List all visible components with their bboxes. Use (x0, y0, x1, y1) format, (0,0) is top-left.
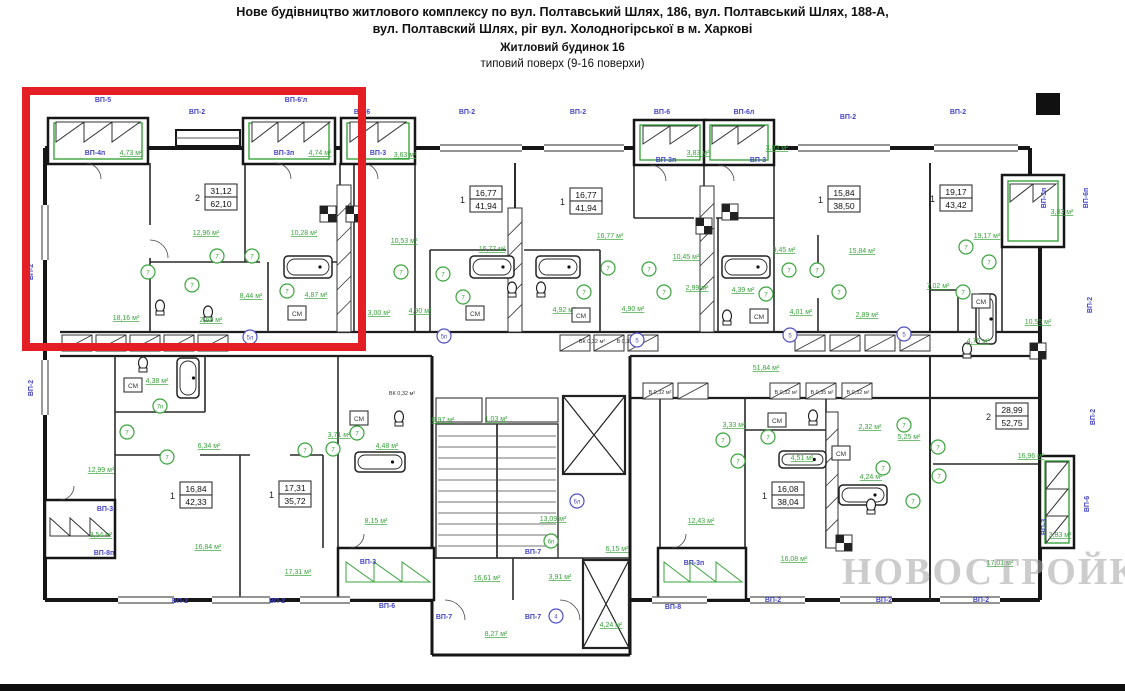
vp-label: ВП-2 (570, 109, 586, 116)
room-area-label: 4,38 м² (146, 378, 169, 385)
apartment-label: 116,7741,94 (460, 186, 502, 212)
duct-label: В 0,32 м² (648, 390, 671, 396)
vp-label: ВП-6л (734, 109, 755, 116)
room-area-label: 5,25 м² (898, 434, 921, 441)
vp-label: ВП-2 (269, 598, 285, 605)
room-area-label: 18,16 м² (113, 315, 140, 322)
room-area-label: 4,39 м² (732, 287, 755, 294)
svg-text:52,75: 52,75 (1001, 418, 1023, 428)
room-area-label: 2,89 м² (856, 312, 879, 319)
vp-label: ВП-6'л (285, 97, 307, 104)
room-area-label: 4,87 м² (305, 292, 328, 299)
room-area-label: 16,77 м² (597, 233, 624, 240)
svg-text:1: 1 (170, 491, 175, 501)
svg-text:1: 1 (269, 490, 274, 500)
vp-label: ВП-2 (1087, 297, 1094, 313)
room-area-label: 16,84 м² (195, 544, 222, 551)
svg-text:15,84: 15,84 (833, 188, 855, 198)
vp-label: ВП-7 (436, 614, 452, 621)
vp-label: ВП-3п (684, 560, 705, 567)
duct-label: ВК 0,32 м² (389, 391, 415, 397)
axis-marker-label: 6л (574, 499, 581, 505)
room-area-label: 8,44 м² (240, 293, 263, 300)
svg-text:31,12: 31,12 (210, 186, 232, 196)
room-area-label: 4,24 м² (860, 474, 883, 481)
room-area-label: 10,53 м² (391, 238, 418, 245)
svg-text:1: 1 (818, 195, 823, 205)
room-area-label: 7,02 м² (927, 283, 950, 290)
svg-text:1: 1 (460, 195, 465, 205)
axis-marker-label: 7п (157, 404, 164, 410)
vp-label: ВП-3 (1041, 519, 1048, 535)
duct-label: В 0,32 м² (774, 390, 797, 396)
room-area-label: 4,90 м² (622, 306, 645, 313)
floor-plan-page: Нове будівництво житлового комплексу по … (0, 0, 1125, 691)
svg-text:19,17: 19,17 (945, 187, 967, 197)
watermark: НОВОСТРОЙКИ (842, 550, 1122, 594)
room-area-label: 9,45 м² (773, 247, 796, 254)
room-area-label: 13,09 м² (540, 516, 567, 523)
vp-label: ВП-3 (360, 559, 376, 566)
bottom-black-bar (0, 684, 1125, 691)
svg-text:42,33: 42,33 (185, 497, 207, 507)
svg-text:38,04: 38,04 (777, 497, 799, 507)
axis-marker-label: 5п (441, 334, 448, 340)
room-area-label: 6,34 м² (198, 443, 221, 450)
vp-label: ВП-2 (840, 114, 856, 121)
room-area-label: 16,77 м² (479, 246, 506, 253)
room-area-label: 16,61 м² (474, 575, 501, 582)
room-area-label: 4,90 м² (409, 308, 432, 315)
washing-machine-label: СМ (976, 299, 986, 306)
room-area-label: 3,83 м² (687, 150, 710, 157)
vp-label: ВП-2 (950, 109, 966, 116)
vp-label: ВП-2 (1090, 409, 1097, 425)
vp-label: ВП-6 (1084, 496, 1091, 512)
axis-marker-label: 6п (548, 539, 555, 545)
elevator-shafts (563, 396, 629, 648)
washing-machine-label: СМ (128, 383, 138, 390)
vp-label: ВП-3п (656, 157, 677, 164)
vp-label: ВП-6 (379, 603, 395, 610)
apartment-label: 117,3135,72 (269, 481, 311, 507)
vp-label: ВП-2 (973, 597, 989, 604)
apartment-label: 228,9952,75 (986, 403, 1028, 429)
vp-label: ВП-2 (28, 380, 35, 396)
room-area-label: 3,91 м² (549, 574, 572, 581)
apartment-label: 116,7741,94 (560, 188, 602, 214)
room-area-label: 2,32 м² (859, 424, 882, 431)
svg-text:2: 2 (986, 412, 991, 422)
vp-label: ВП-7 (525, 614, 541, 621)
vp-label: ВП-2 (459, 109, 475, 116)
svg-text:38,50: 38,50 (833, 201, 855, 211)
room-area-label: 4,48 м² (376, 443, 399, 450)
vp-label: ВП-6 (654, 109, 670, 116)
vp-label: ВП-6п (1083, 188, 1090, 209)
room-area-label: 16,96 м² (1018, 453, 1045, 460)
partition-walls (115, 163, 1040, 600)
room-area-label: 3,00 м² (368, 310, 391, 317)
room-area-label: 3,71 м² (328, 432, 351, 439)
axis-marker-label: 5л (247, 335, 254, 341)
room-area-label: 10,55 м² (1025, 319, 1052, 326)
room-area-label: 0,97 м² (432, 417, 455, 424)
vp-label: ВП-3 (370, 150, 386, 157)
vp-label: ВП-8 (665, 604, 681, 611)
svg-text:43,42: 43,42 (945, 200, 967, 210)
room-area-label: 4,73 м² (120, 150, 143, 157)
room-area-label: 10,45 м² (673, 254, 700, 261)
room-area-label: 2,99 м² (686, 285, 709, 292)
vp-label: ВП-3 (97, 506, 113, 513)
vp-label: ВП-2 (189, 109, 205, 116)
vp-label: ВП-5 (95, 97, 111, 104)
svg-text:16,84: 16,84 (185, 484, 207, 494)
washing-machine-label: СМ (754, 314, 764, 321)
room-area-label: 16,08 м² (781, 556, 808, 563)
room-area-label: 4,76 м² (967, 338, 990, 345)
apartment-label: 231,1262,10 (195, 184, 237, 210)
vp-label: ВП-2 (172, 598, 188, 605)
washing-machine-label: СМ (354, 416, 364, 423)
svg-text:28,99: 28,99 (1001, 405, 1023, 415)
duct-label: В 0,32 м² (846, 390, 869, 396)
room-area-label: 4,51 м² (791, 455, 814, 462)
svg-text:16,77: 16,77 (475, 188, 497, 198)
room-area-label: 2,65 м² (200, 317, 223, 324)
svg-text:41,94: 41,94 (575, 203, 597, 213)
room-area-label: 12,43 м² (688, 518, 715, 525)
svg-text:16,08: 16,08 (777, 484, 799, 494)
apartment-label: 116,8442,33 (170, 482, 212, 508)
svg-text:2: 2 (195, 193, 200, 203)
apartment-label: 116,0838,04 (762, 482, 804, 508)
room-area-label: 8,15 м² (365, 518, 388, 525)
svg-text:17,31: 17,31 (284, 483, 306, 493)
washing-machine-label: СМ (470, 311, 480, 318)
room-area-label: 12,96 м² (193, 230, 220, 237)
vp-label: ВП-7 (525, 549, 541, 556)
room-area-label: 19,17 м² (974, 233, 1001, 240)
room-area-label: 3,83 м² (766, 145, 789, 152)
stair-core-walls (432, 356, 630, 655)
vp-label: ВП-3п (274, 150, 295, 157)
washing-machine-label: СМ (836, 451, 846, 458)
washing-machine-label: СМ (772, 418, 782, 425)
svg-text:16,77: 16,77 (575, 190, 597, 200)
room-area-label: 3,54 м² (90, 532, 113, 539)
room-area-label: 12,99 м² (88, 467, 115, 474)
apartment-label: 115,8438,50 (818, 186, 860, 212)
vp-label: ВП-3 (750, 157, 766, 164)
room-area-label: 17,31 м² (285, 569, 312, 576)
room-area-label: 3,63 м² (394, 152, 417, 159)
duct-label: ВК 0,32 м² (579, 339, 605, 345)
svg-text:1: 1 (560, 197, 565, 207)
washing-machine-label: СМ (292, 311, 302, 318)
vp-label: ВП-2 (876, 597, 892, 604)
room-area-label: 8,27 м² (485, 631, 508, 638)
duct-label: В 0,35 м² (810, 390, 833, 396)
vp-label: ВП-4п (85, 150, 106, 157)
vp-label: ВП-2 (765, 597, 781, 604)
washing-machine-label: СМ (576, 313, 586, 320)
svg-text:1: 1 (762, 491, 767, 501)
room-area-label: 3,33 м² (723, 422, 746, 429)
svg-text:62,10: 62,10 (210, 199, 232, 209)
room-area-label: 3,83 м² (1051, 209, 1074, 216)
room-area-label: 4,74 м² (309, 150, 332, 157)
room-area-label: 4,24 м² (600, 622, 623, 629)
vp-label: ВП-3п (1041, 188, 1048, 209)
svg-text:1: 1 (930, 194, 935, 204)
apartment-label: 119,1743,42 (930, 185, 972, 211)
room-area-label: 51,84 м² (753, 365, 780, 372)
room-area-label: 3,83 м² (1049, 532, 1072, 539)
room-area-label: 15,84 м² (849, 248, 876, 255)
vp-label: ВП-8п (94, 550, 115, 557)
room-area-label: 6,15 м² (606, 546, 629, 553)
room-area-label: 1,03 м² (485, 416, 508, 423)
room-area-label: 4,01 м² (790, 309, 813, 316)
svg-text:35,72: 35,72 (284, 496, 306, 506)
room-area-label: 10,28 м² (291, 230, 318, 237)
svg-text:41,94: 41,94 (475, 201, 497, 211)
